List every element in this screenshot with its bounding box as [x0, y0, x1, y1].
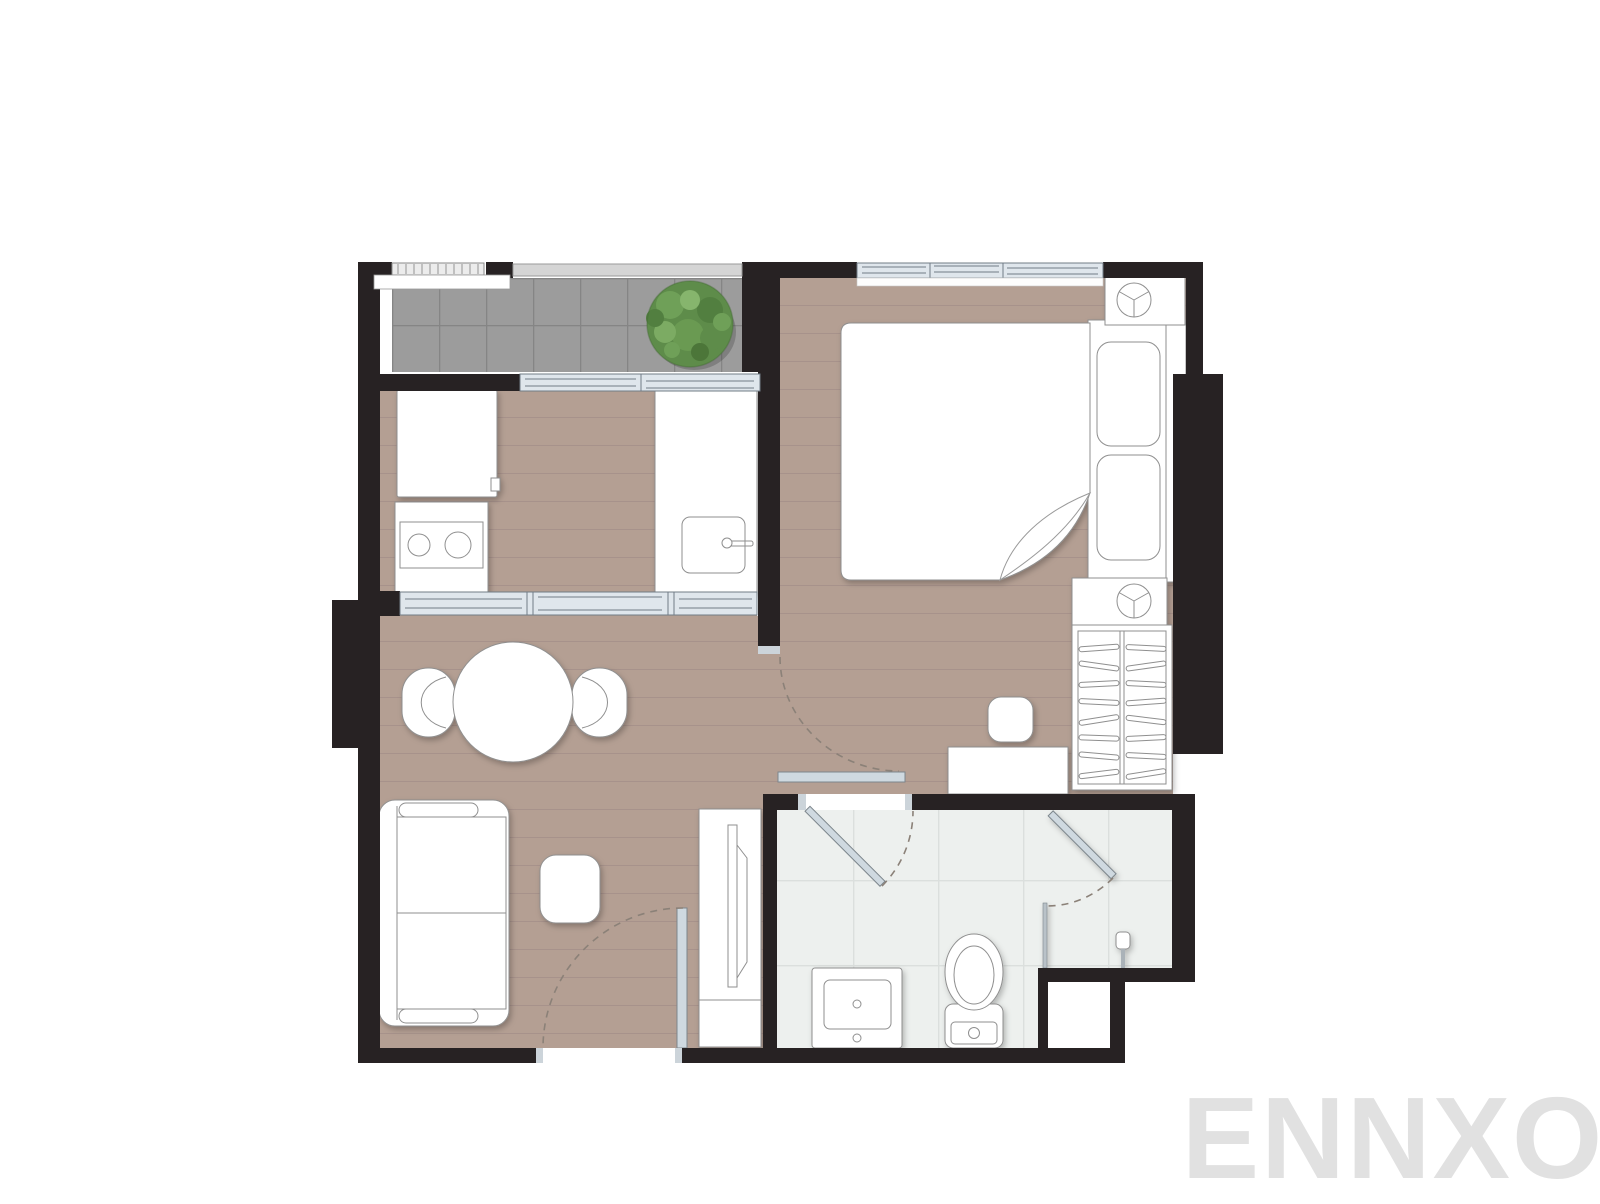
wall-segment	[1103, 262, 1203, 278]
wall-segment	[763, 794, 777, 1048]
wall-segment	[1173, 374, 1223, 754]
toilet	[945, 934, 1003, 1048]
stove-counter	[395, 502, 488, 592]
nightstand-top	[1105, 277, 1185, 325]
desk	[948, 747, 1068, 794]
bedroom-stool	[988, 697, 1033, 742]
wall-segment	[1172, 810, 1195, 982]
wall-segment	[358, 1048, 536, 1063]
wall-segment	[358, 262, 380, 1063]
refrigerator	[397, 390, 500, 497]
wardrobe	[1072, 625, 1172, 790]
wall-segment	[1186, 278, 1203, 374]
wall-segment	[380, 374, 520, 391]
sofa	[379, 800, 509, 1026]
wall-segment	[758, 262, 780, 654]
balcony-railing	[513, 264, 742, 276]
bedroom-sliding-door	[778, 772, 905, 782]
wall-segment	[1038, 982, 1048, 1048]
dining-table	[453, 642, 573, 762]
floor-plan: ENNXO	[0, 0, 1600, 1204]
wall-segment	[1038, 968, 1195, 982]
vanity-sink	[812, 968, 902, 1048]
watermark-text: ENNXO	[1182, 1073, 1600, 1203]
balcony-sliding-door	[520, 374, 760, 391]
floor-plan-canvas: ENNXO	[0, 0, 1600, 1204]
wall-segment	[758, 262, 857, 278]
wall-end-cap	[798, 794, 806, 810]
entry-door	[677, 908, 687, 1048]
dining-chair-right	[572, 668, 627, 737]
wall-segment	[912, 794, 1195, 810]
sink-counter	[655, 391, 757, 592]
tv-cabinet	[699, 809, 761, 1047]
wall-segment	[1110, 982, 1125, 1063]
wall-segment	[332, 600, 358, 748]
pillow	[1097, 342, 1160, 446]
wall-end-cap	[675, 1048, 682, 1063]
dining-chair-left	[402, 668, 455, 737]
bedroom-window	[857, 263, 1103, 286]
wall-segment	[763, 794, 798, 810]
wall-end-cap	[905, 794, 912, 810]
pillow	[1097, 455, 1160, 560]
kitchen-sliding-partition	[400, 592, 757, 615]
wall-segment	[682, 1048, 1125, 1063]
bed	[841, 320, 1186, 582]
coffee-table	[540, 855, 600, 923]
wall-end-cap	[536, 1048, 543, 1063]
wall-end-cap	[758, 646, 780, 654]
blanket	[841, 323, 1090, 580]
nightstand-bottom	[1072, 578, 1167, 625]
shower-partition	[1043, 903, 1047, 968]
wall-segment	[380, 591, 400, 616]
